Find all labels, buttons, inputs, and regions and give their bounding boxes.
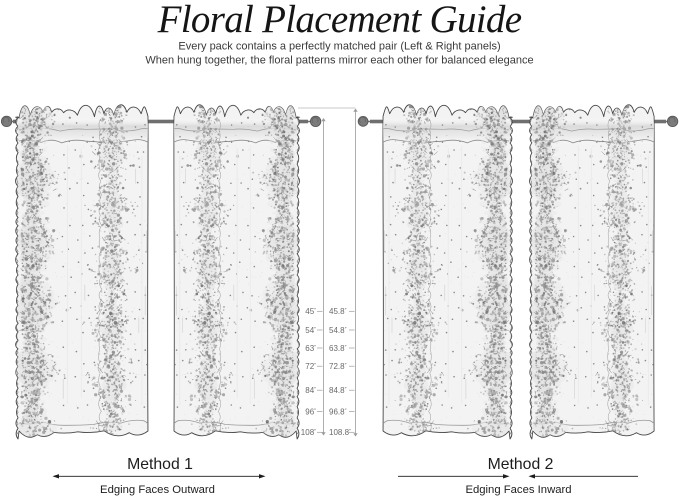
svg-text:When hung together, the floral: When hung together, the floral patterns … [145,55,533,67]
svg-text:54.8″: 54.8″ [329,326,347,335]
svg-text:72.8″: 72.8″ [329,362,347,371]
svg-text:Edging Faces Outward: Edging Faces Outward [100,484,215,496]
svg-text:84.8″: 84.8″ [329,386,347,395]
svg-text:Edging Faces Inward: Edging Faces Inward [465,484,571,496]
svg-text:Method 1: Method 1 [127,456,193,473]
svg-text:Floral Placement Guide: Floral Placement Guide [157,0,522,41]
svg-text:45.8″: 45.8″ [329,307,347,316]
svg-text:96.8″: 96.8″ [329,407,347,416]
svg-text:Every pack contains a perfectl: Every pack contains a perfectly matched … [178,41,500,53]
svg-text:108.8″: 108.8″ [329,428,351,437]
svg-text:Method 2: Method 2 [488,456,554,473]
svg-text:108″: 108″ [301,428,316,437]
svg-text:63.8″: 63.8″ [329,344,347,353]
